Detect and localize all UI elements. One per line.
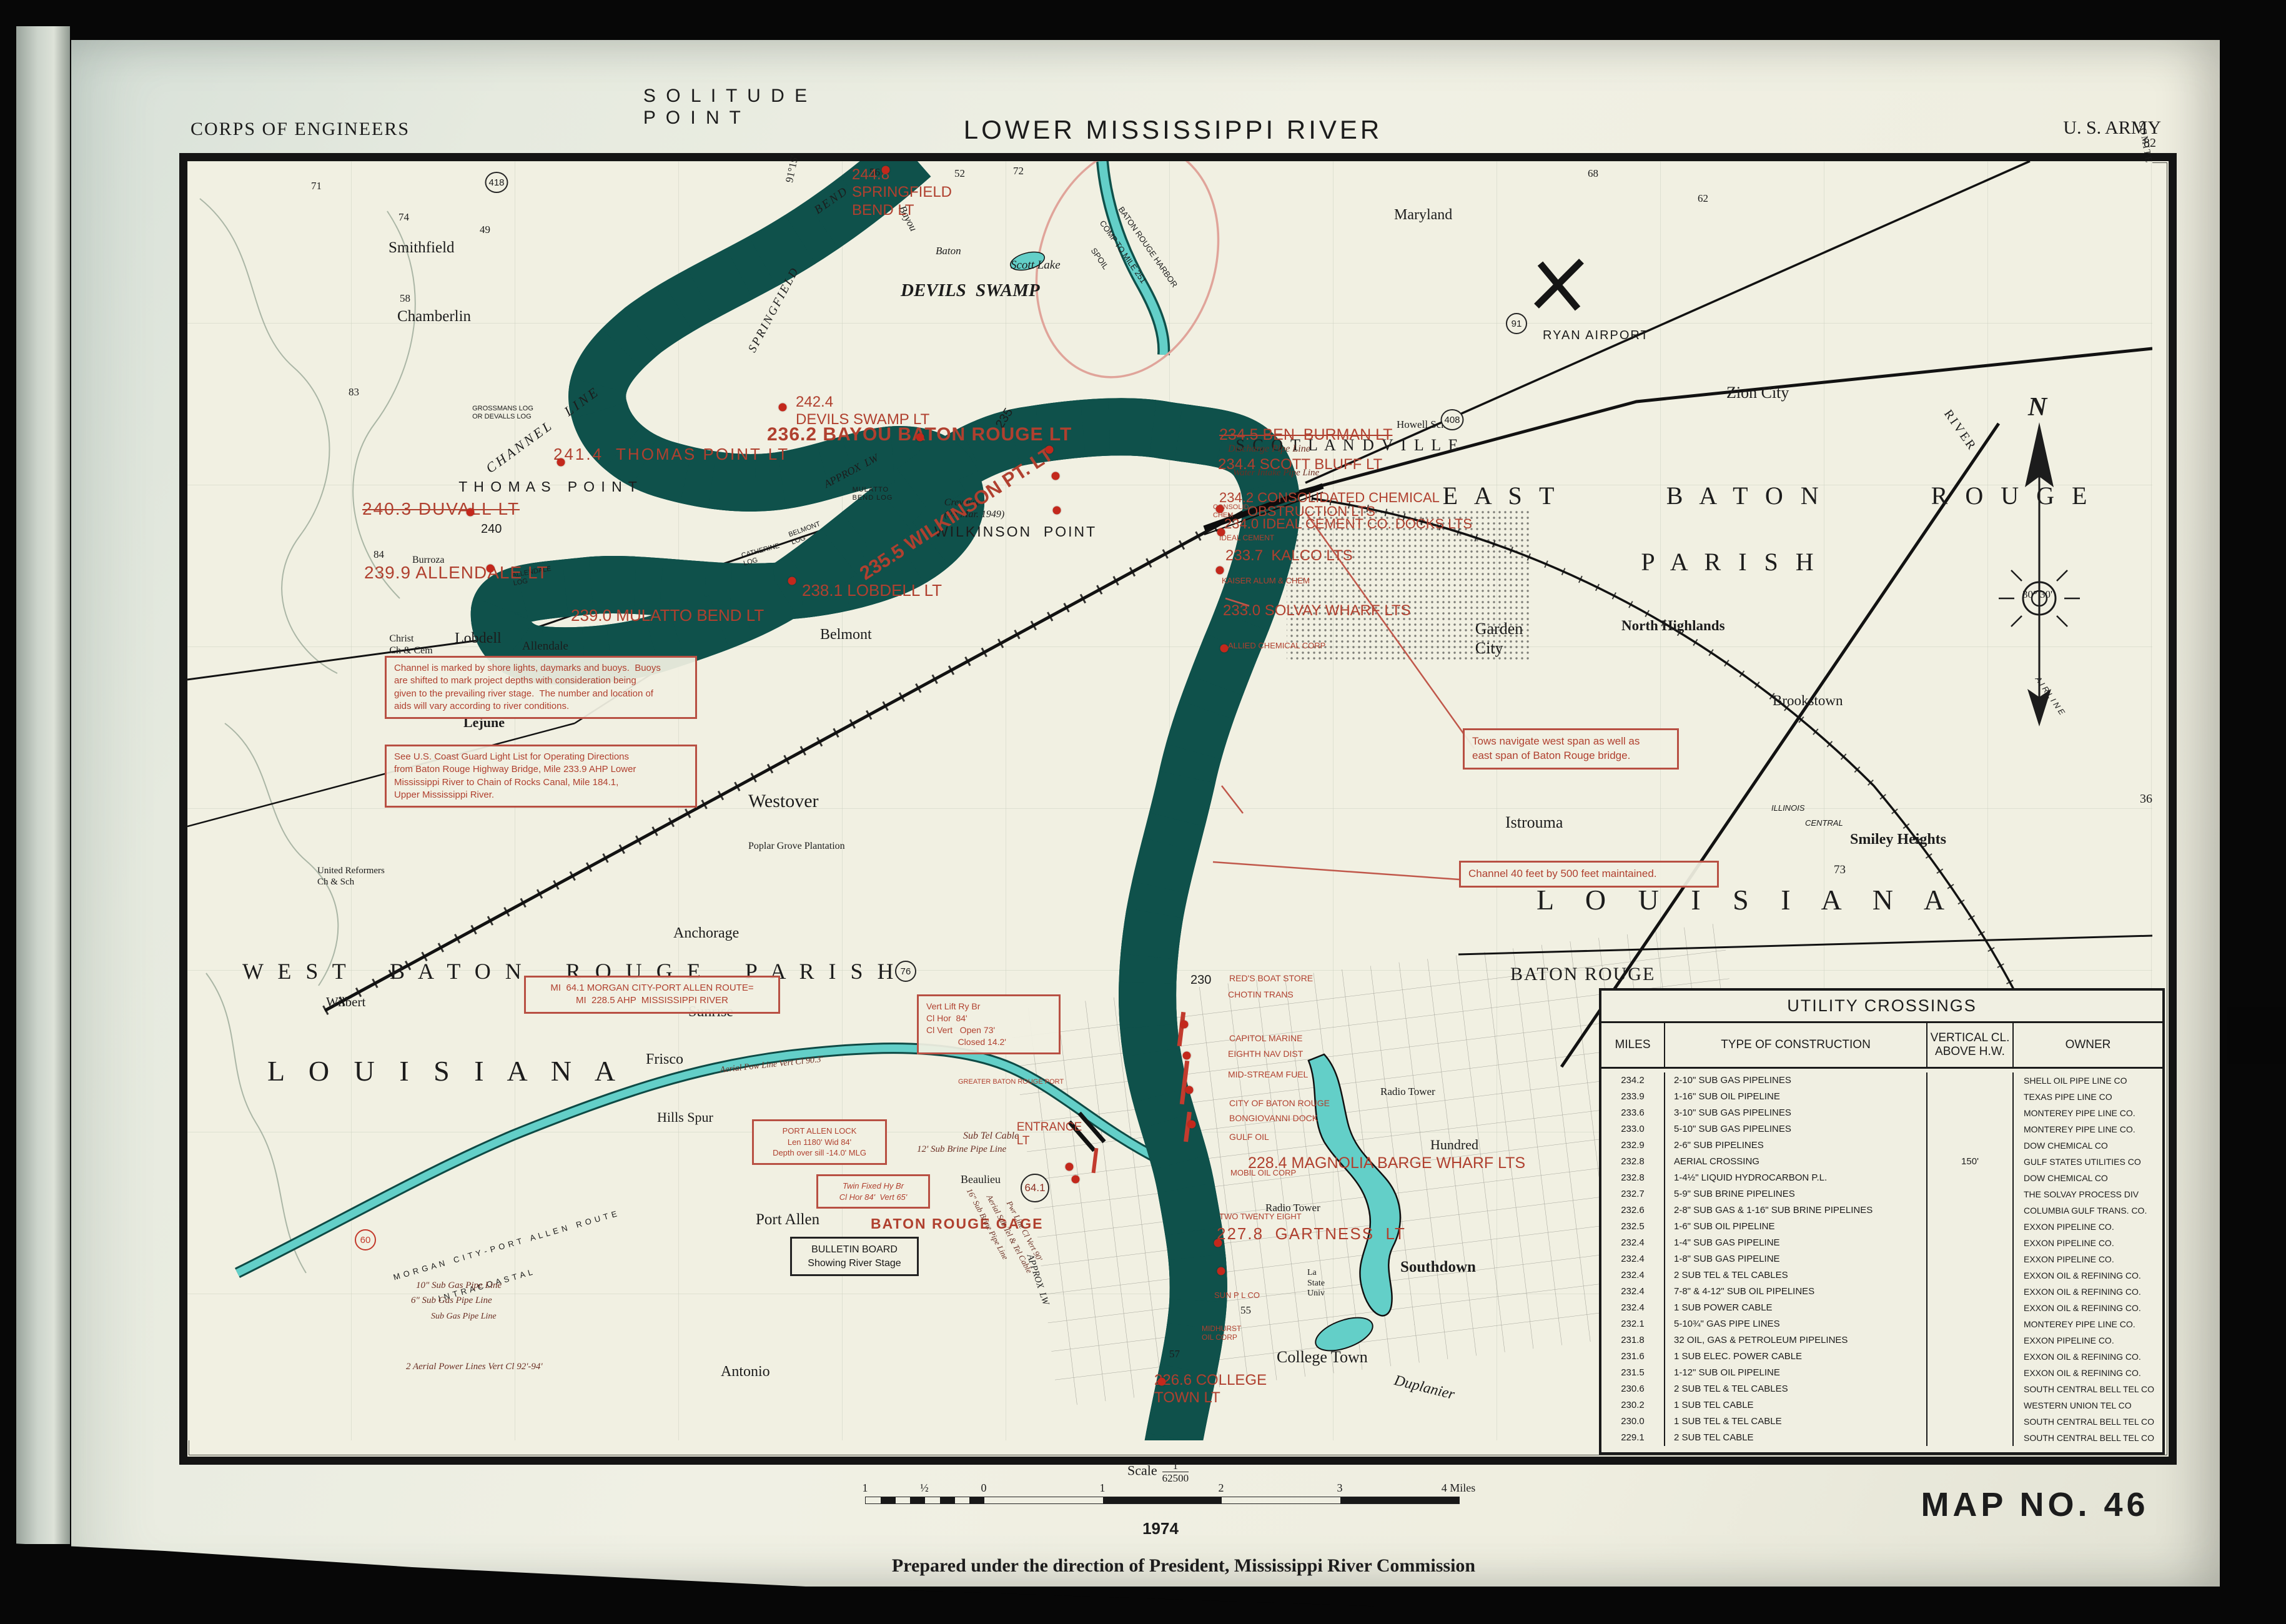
thomas-point: T H O M A S P O I N T bbox=[458, 478, 638, 495]
nav-light-dot bbox=[1066, 1163, 1074, 1171]
nav-light-dot bbox=[882, 166, 890, 174]
nav-light-dot bbox=[1053, 507, 1061, 515]
radio-tower-n: Radio Tower bbox=[1380, 1086, 1435, 1098]
utility-row: 231.61 SUB ELEC. POWER CABLEEXXON OIL & … bbox=[1601, 1349, 2162, 1365]
num-36: 36 bbox=[2140, 792, 2152, 807]
frisco: Frisco bbox=[646, 1051, 683, 1068]
lt-238-1: 238.1 LOBDELL LT bbox=[802, 581, 942, 600]
lt-233-0: 233.0 SOLVAY WHARF LTS bbox=[1223, 602, 1411, 620]
utility-row: 232.47-8" & 4-12" SUB OIL PIPELINESEXXON… bbox=[1601, 1284, 2162, 1300]
num-71: 71 bbox=[311, 180, 322, 192]
lt-233-7: 233.7 KALCO LTS bbox=[1225, 547, 1353, 565]
antonio: Antonio bbox=[721, 1363, 770, 1380]
gas-pipe-6: 6" Sub Gas Pipe Line bbox=[411, 1295, 492, 1307]
approx-lw-1: APPROX LW bbox=[822, 452, 881, 491]
sub-tel-cable: Sub Tel Cable bbox=[963, 1131, 1019, 1142]
howell-sch: Howell Sch bbox=[1397, 418, 1447, 431]
scale-tick: 4 Miles bbox=[1442, 1482, 1476, 1495]
lobdell: Lobdell bbox=[455, 630, 502, 647]
christ-church: Christ Ch & Cem bbox=[389, 633, 432, 657]
utility-row: 232.41-4" SUB GAS PIPELINEEXXON PIPELINE… bbox=[1601, 1235, 2162, 1251]
compass-n: N bbox=[2028, 392, 2047, 423]
utility-row: 232.92-6" SUB PIPELINESDOW CHEMICAL CO bbox=[1601, 1137, 2162, 1154]
utility-row: 232.41-8" SUB GAS PIPELINEEXXON PIPELINE… bbox=[1601, 1251, 2162, 1267]
central-rr: CENTRAL bbox=[1805, 818, 1843, 828]
two-twenty-eight: TWO TWENTY EIGHT bbox=[1219, 1212, 1302, 1221]
spoil: SPOIL bbox=[1089, 246, 1111, 271]
note-port-allen-lock: PORT ALLEN LOCK Len 1180' Wid 84' Depth … bbox=[752, 1119, 887, 1165]
note-channel-40: Channel 40 feet by 500 feet maintained. bbox=[1459, 861, 1719, 888]
ideal-cement: IDEAL CEMENT bbox=[1219, 533, 1274, 542]
mile-230: 230 bbox=[1190, 973, 1211, 988]
utility-row: 232.51-6" SUB OIL PIPELINEEXXON PIPELINE… bbox=[1601, 1219, 2162, 1235]
num-62: 62 bbox=[1698, 192, 1708, 205]
capitol-marine: CAPITOL MARINE bbox=[1229, 1033, 1302, 1044]
eighth-nav-dist: EIGHTH NAV DIST bbox=[1228, 1049, 1303, 1059]
ryan-airport: RYAN AIRPORT bbox=[1543, 329, 1650, 344]
lt-226-6: 226.6 COLLEGE TOWN LT bbox=[1154, 1372, 1267, 1407]
road-badge-91: 91 bbox=[1506, 313, 1527, 334]
belmont: Belmont bbox=[820, 626, 872, 643]
city-of-baton-rouge: CITY OF BATON ROUGE bbox=[1229, 1098, 1330, 1109]
scale-tick: 2 bbox=[1219, 1482, 1224, 1495]
allendale-village: Allendale bbox=[522, 640, 568, 653]
col-vertical-cl: VERTICAL CL. ABOVE H.W. bbox=[1927, 1023, 2014, 1067]
baton-rouge-city: BATON ROUGE bbox=[1510, 963, 1655, 985]
utility-row: 230.21 SUB TEL CABLEWESTERN UNION TEL CO bbox=[1601, 1397, 2162, 1414]
la-state-univ: La State Univ bbox=[1307, 1268, 1325, 1299]
duplanier: Duplanier bbox=[1392, 1372, 1457, 1404]
nav-light-dot bbox=[1188, 1121, 1196, 1129]
col-type: TYPE OF CONSTRUCTION bbox=[1665, 1023, 1927, 1067]
comite-river: RIVER bbox=[1941, 407, 1979, 454]
scale-fraction: 162500 bbox=[1162, 1460, 1189, 1483]
scale-tick: 3 bbox=[1337, 1482, 1343, 1495]
reds-boat-store: RED'S BOAT STORE bbox=[1229, 973, 1313, 984]
nav-light-dot bbox=[788, 577, 796, 585]
nav-light-dot bbox=[779, 404, 787, 412]
louisiana-west: L O U I S I A N A bbox=[267, 1054, 624, 1088]
scale-word: Scale bbox=[1127, 1463, 1157, 1478]
utility-row: 234.22-10" SUB GAS PIPELINESSHELL OIL PI… bbox=[1601, 1072, 2162, 1089]
nav-light-dot bbox=[1046, 446, 1054, 454]
nav-light-dot bbox=[916, 433, 924, 442]
table-header: MILES TYPE OF CONSTRUCTION VERTICAL CL. … bbox=[1601, 1023, 2162, 1069]
gas-pipe-10: 10" Sub Gas Pipe Line bbox=[416, 1280, 502, 1292]
grossmans-log: GROSSMANS LOG OR DEVALLS LOG bbox=[472, 405, 533, 421]
nav-light-dot bbox=[1052, 472, 1060, 480]
solitude-point: S O L I T U D E P O I N T bbox=[643, 85, 809, 129]
mobil-oil: MOBIL OIL CORP bbox=[1230, 1168, 1296, 1177]
zion-city: Zion City bbox=[1726, 384, 1789, 403]
istrouma: Istrouma bbox=[1505, 813, 1563, 833]
utility-row: 231.832 OIL, GAS & PETROLEUM PIPELINESEX… bbox=[1601, 1332, 2162, 1349]
lt-239-9: 239.9 ALLENDALE LT bbox=[364, 562, 548, 583]
col-owner: OWNER bbox=[2014, 1036, 2162, 1054]
airline-hwy: A I R L I N E bbox=[2033, 675, 2067, 716]
garden-city: Garden City bbox=[1475, 620, 1523, 658]
nav-light-dot bbox=[1158, 1378, 1166, 1386]
hundred: Hundred bbox=[1430, 1137, 1478, 1153]
greater-br-port: GREATER BATON ROUGE PORT bbox=[958, 1078, 1064, 1086]
devils-swamp-2: SWAMP bbox=[976, 280, 1040, 301]
lt-235-5: 235.5 WILKINSON PT. LT bbox=[856, 443, 1057, 585]
note-mi-64: MI 64.1 MORGAN CITY-PORT ALLEN ROUTE= MI… bbox=[524, 976, 780, 1014]
illinois-rr: ILLINOIS bbox=[1771, 803, 1804, 813]
scale-title: Scale162500 bbox=[1127, 1460, 1189, 1483]
mile-240: 240 bbox=[481, 522, 502, 537]
aerial-pow-line: Aerial Pow Line Vert Cl 90.3' bbox=[720, 1055, 823, 1076]
port-allen-town: Port Allen bbox=[756, 1211, 819, 1229]
nav-light-dot bbox=[557, 458, 565, 467]
num-84: 84 bbox=[374, 548, 384, 561]
prepared-note: Prepared under the direction of Presiden… bbox=[892, 1555, 1475, 1577]
br-harbor: BATON ROUGE HARBOR bbox=[1116, 205, 1179, 289]
nav-light-dot bbox=[1220, 645, 1229, 653]
utility-row: 229.12 SUB TEL CABLESOUTH CENTRAL BELL T… bbox=[1601, 1430, 2162, 1446]
smithfield: Smithfield bbox=[388, 239, 455, 257]
discharge-pipe-line: Discharge Pipe Line bbox=[1228, 443, 1310, 455]
utility-row: 230.01 SUB TEL & TEL CABLESOUTH CENTRAL … bbox=[1601, 1414, 2162, 1430]
brookstown: Brookstown bbox=[1773, 692, 1843, 709]
lt-240-3: 240.3 DUVALL LT bbox=[362, 498, 520, 519]
road-badge-76: 76 bbox=[895, 961, 916, 982]
note-twin-bridge: Twin Fixed Hy Br Cl Hor 84' Vert 65' bbox=[816, 1174, 930, 1209]
gulf-oil: GULF OIL bbox=[1229, 1132, 1269, 1142]
chotin-trans: CHOTIN TRANS bbox=[1228, 989, 1294, 1000]
nav-light-dot bbox=[1216, 567, 1224, 575]
num-74: 74 bbox=[398, 211, 409, 224]
utility-row: 232.62-8" SUB GAS & 1-16" SUB BRINE PIPE… bbox=[1601, 1202, 2162, 1219]
lt-244-8: 244.8 SPRINGFIELD BEND LT bbox=[852, 166, 952, 219]
maryland: Maryland bbox=[1394, 206, 1452, 224]
beaulieu: Beaulieu bbox=[961, 1173, 1001, 1186]
utility-row: 232.75-9" SUB BRINE PIPELINESTHE SOLVAY … bbox=[1601, 1186, 2162, 1202]
utility-row: 232.42 SUB TEL & TEL CABLESEXXON OIL & R… bbox=[1601, 1267, 2162, 1284]
nav-light-dot bbox=[1214, 1239, 1222, 1247]
wilbert: Wilbert bbox=[326, 994, 365, 1010]
westover: Westover bbox=[748, 790, 819, 812]
entrance-lt: ENTRANCE LT bbox=[1017, 1121, 1082, 1149]
road-badge-418: 418 bbox=[485, 172, 508, 193]
num-83: 83 bbox=[349, 386, 359, 399]
num-52: 52 bbox=[954, 167, 965, 180]
scale-tick: 1 bbox=[863, 1482, 868, 1495]
nav-light-dot bbox=[487, 565, 495, 573]
catherine-log: CATHERINE LOG bbox=[741, 542, 783, 568]
midhurst: MIDHURST OIL CORP bbox=[1202, 1324, 1241, 1342]
east-baton-rouge: E A S T B A T O N R O U G E bbox=[1443, 481, 2093, 510]
devils-swamp-1: DEVILS bbox=[901, 280, 966, 301]
page-tab bbox=[2227, 1007, 2286, 1064]
mid-stream-fuel: MID-STREAM FUEL bbox=[1228, 1069, 1308, 1080]
map-number: MAP NO. 46 bbox=[1921, 1485, 2149, 1524]
sun-pl-co: SUN P L CO bbox=[1214, 1290, 1260, 1300]
parish-east: P A R I S H bbox=[1641, 547, 1819, 577]
utility-row: 231.51-12" SUB OIL PIPELINEEXXON OIL & R… bbox=[1601, 1365, 2162, 1381]
num-49: 49 bbox=[480, 224, 490, 236]
road-badge-60: 60 bbox=[355, 1229, 376, 1250]
north-highlands: North Highlands bbox=[1621, 617, 1725, 634]
louisiana-east: L O U I S I A N A bbox=[1536, 883, 1957, 917]
nav-light-dot bbox=[1217, 528, 1225, 537]
note-channel-marked: Channel is marked by shore lights, dayma… bbox=[385, 656, 697, 719]
utility-crossings-table: UTILITY CROSSINGS MILES TYPE OF CONSTRUC… bbox=[1599, 988, 2165, 1455]
nav-light-dot bbox=[1217, 1267, 1225, 1275]
smiley-heights: Smiley Heights bbox=[1850, 831, 1946, 848]
utility-row: 232.8AERIAL CROSSING150'GULF STATES UTIL… bbox=[1601, 1154, 2162, 1170]
num-58: 58 bbox=[400, 292, 410, 305]
scale-ticks: 1½01234 Miles bbox=[865, 1482, 1458, 1494]
gas-pipe-sub: Sub Gas Pipe Line bbox=[431, 1312, 497, 1322]
utility-row: 233.91-16" SUB OIL PIPELINETEXAS PIPE LI… bbox=[1601, 1089, 2162, 1105]
lt-234-0: 234.0 IDEAL CEMENT CO. DOCKS LTS bbox=[1224, 516, 1472, 532]
belmont-log: BELMONT LOG bbox=[788, 520, 824, 547]
note-vert-lift: Vert Lift Ry Br Cl Hor 84' Cl Vert Open … bbox=[917, 994, 1061, 1054]
southdown: Southdown bbox=[1400, 1258, 1476, 1277]
utility-row: 230.62 SUB TEL & TEL CABLESSOUTH CENTRAL… bbox=[1601, 1381, 2162, 1397]
utility-row: 233.05-10" SUB GAS PIPELINESMONTEREY PIP… bbox=[1601, 1121, 2162, 1137]
num-68: 68 bbox=[1588, 167, 1598, 180]
col-miles: MILES bbox=[1601, 1023, 1665, 1067]
num-73: 73 bbox=[1834, 863, 1846, 877]
sub-brine-12: 12' Sub Brine Pipe Line bbox=[917, 1144, 1006, 1156]
scott-lake: Scott Lake bbox=[1011, 259, 1061, 272]
utility-row: 233.63-10" SUB GAS PIPELINESMONTEREY PIP… bbox=[1601, 1105, 2162, 1121]
note-bulletin-board: BULLETIN BOARD Showing River Stage bbox=[790, 1237, 919, 1276]
num-72: 72 bbox=[1013, 165, 1024, 177]
nav-light-dot bbox=[467, 508, 475, 517]
lt-227-8: 227.8 GARTNESS LT bbox=[1217, 1224, 1406, 1244]
table-title: UTILITY CROSSINGS bbox=[1601, 991, 2162, 1023]
mulatto-bend-log: MULATTO BEND LOG bbox=[853, 486, 893, 502]
springfield-name: SPRINGFIELD bbox=[746, 265, 803, 355]
scale-tick: 0 bbox=[981, 1482, 987, 1495]
road-badge-408: 408 bbox=[1440, 409, 1463, 430]
lt-241-4: 241.4 THOMAS POINT LT bbox=[553, 445, 789, 464]
allied-chemical: ALLIED CHEMICAL CORP bbox=[1228, 641, 1325, 650]
utility-row: 232.41 SUB POWER CABLEEXXON OIL & REFINI… bbox=[1601, 1300, 2162, 1316]
college-town: College Town bbox=[1277, 1348, 1368, 1367]
bayou-baton-2: Baton bbox=[936, 245, 961, 257]
bongiovanni-dock: BONGIOVANNI DOCK bbox=[1229, 1113, 1318, 1124]
scale-tick: ½ bbox=[920, 1482, 929, 1495]
scale-tick: 1 bbox=[1100, 1482, 1106, 1495]
poplar-grove: Poplar Grove Plantation bbox=[748, 841, 845, 853]
num-82: 82 bbox=[2144, 136, 2156, 151]
chamberlin: Chamberlin bbox=[397, 307, 471, 326]
note-coast-guard: See U.S. Coast Guard Light List for Oper… bbox=[385, 745, 697, 808]
scale-bar bbox=[865, 1497, 1460, 1504]
lat-30-30: 30° 30' bbox=[2022, 588, 2052, 601]
utility-row: 232.81-4½" LIQUID HYDROCARBON P.L.DOW CH… bbox=[1601, 1170, 2162, 1186]
water-intake: Water Intake Pipe Line bbox=[1233, 468, 1319, 479]
nav-light-dot bbox=[1216, 505, 1224, 513]
road-badge-64.1: 64.1 bbox=[1021, 1174, 1049, 1202]
nav-light-dot bbox=[1183, 1052, 1191, 1060]
kaiser-alum: KAISER ALUM & CHEM bbox=[1222, 576, 1310, 585]
num-55: 55 bbox=[1240, 1304, 1251, 1317]
united-reformers: United Reformers Ch & Sch bbox=[317, 866, 385, 888]
num-57: 57 bbox=[1169, 1348, 1180, 1360]
aerial-power-2: 2 Aerial Power Lines Vert Cl 92'-94' bbox=[406, 1362, 543, 1373]
nav-light-dot bbox=[1180, 1021, 1189, 1029]
table-rows: 234.22-10" SUB GAS PIPELINESSHELL OIL PI… bbox=[1601, 1069, 2162, 1452]
bend-name: BEND bbox=[812, 184, 851, 218]
note-tows: Tows navigate west span as well as east … bbox=[1463, 728, 1679, 770]
map-year: 1974 bbox=[1142, 1519, 1179, 1538]
utility-row: 232.15-10¾" GAS PIPE LINESMONTEREY PIPE … bbox=[1601, 1316, 2162, 1332]
lt-239-0: 239.0 MULATTO BEND LT bbox=[571, 606, 764, 625]
book-photo: CORPS OF ENGINEERS LOWER MISSISSIPPI RIV… bbox=[0, 0, 2286, 1624]
morgan-canal-name: M O R G A N C I T Y - P O R T A L L E N … bbox=[392, 1209, 618, 1282]
nav-light-dot bbox=[1185, 1086, 1194, 1094]
anchorage: Anchorage bbox=[673, 924, 739, 942]
lt-234-5: 234.5 BEN BURMAN LT bbox=[1219, 426, 1392, 445]
hills-spur: Hills Spur bbox=[657, 1109, 713, 1126]
nav-light-dot bbox=[1072, 1176, 1080, 1184]
long-91-15: 91°15' bbox=[783, 154, 801, 184]
